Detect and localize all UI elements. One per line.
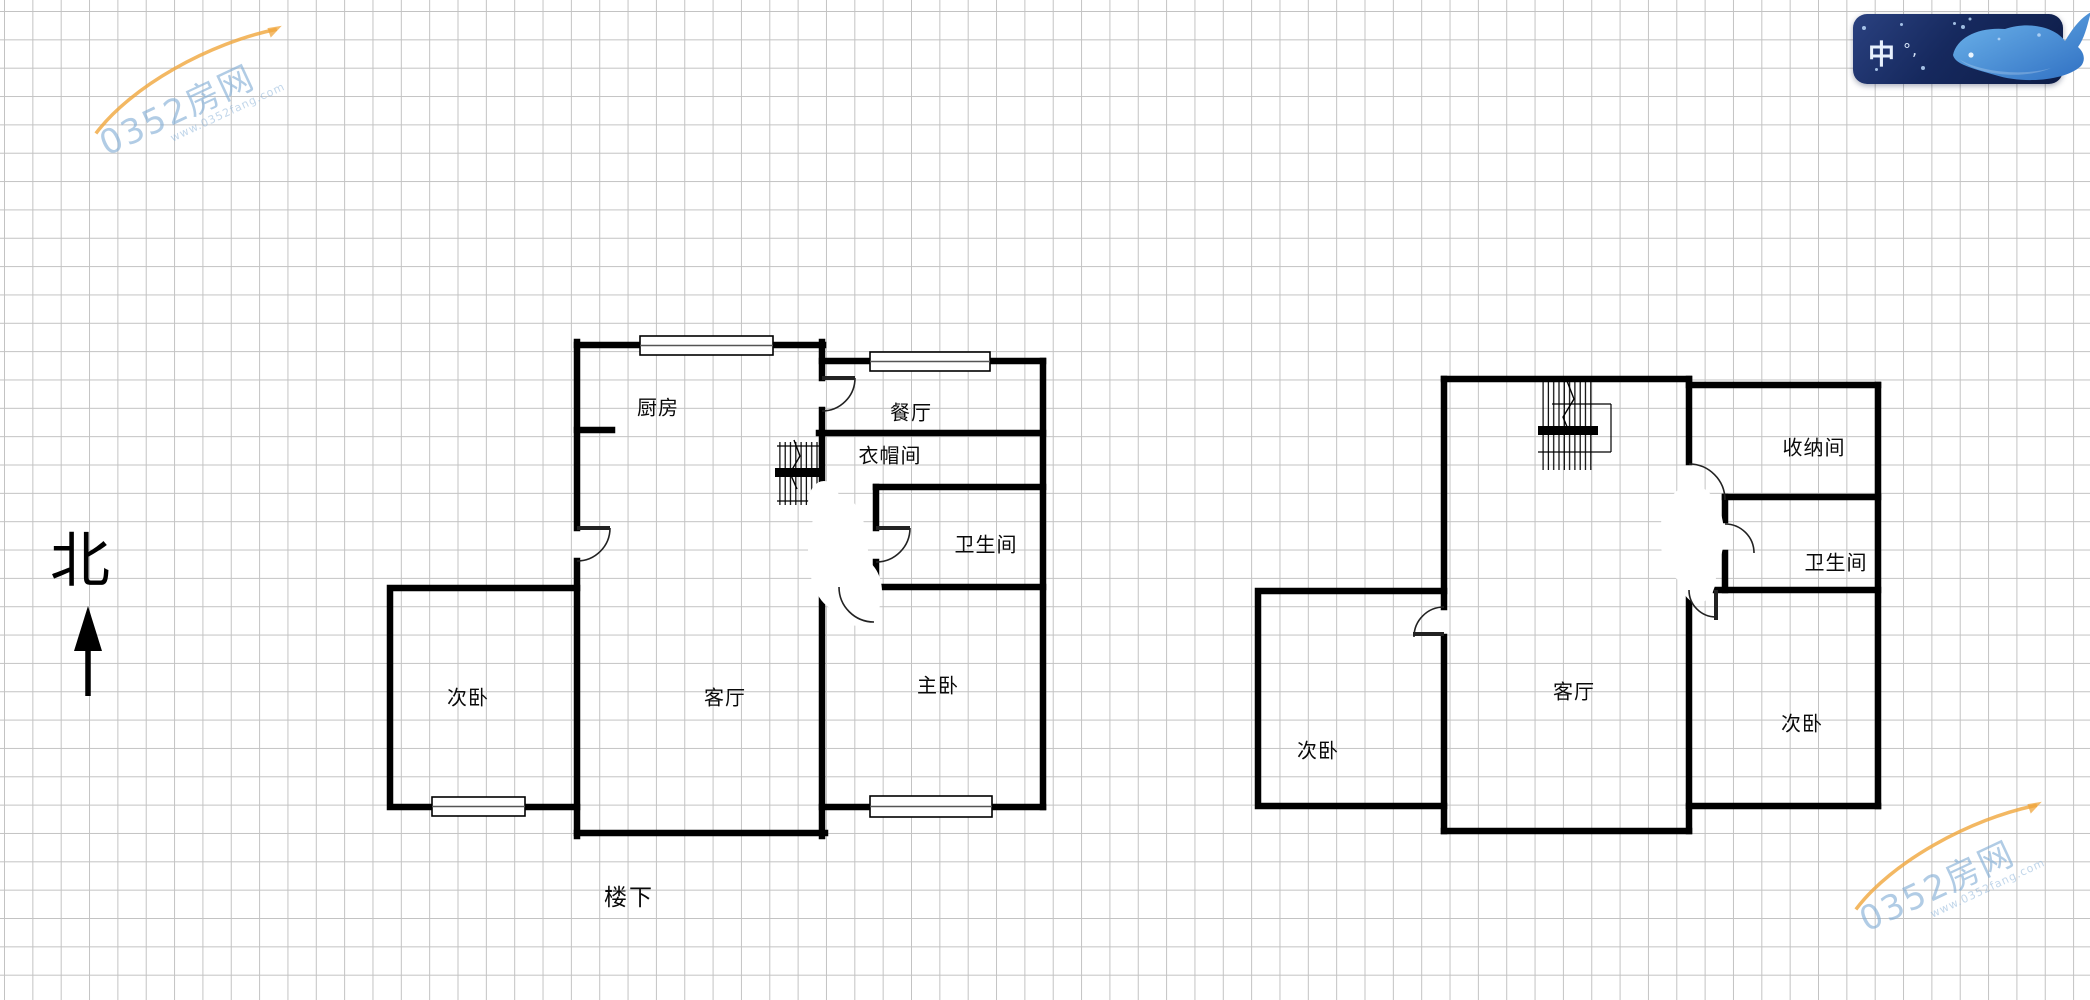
room-label-secondary-down: 次卧 [447,682,489,711]
ime-language-mode-button[interactable]: 中 [1868,33,1895,72]
downstairs-walls [390,342,1043,836]
plan-caption-downstairs: 楼下 [604,878,654,912]
floor-plan-canvas: 北 厨房 餐厅 衣帽间 卫生间 主卧 客厅 次卧 楼下 收纳间 卫生间 客厅 次… [0,0,2090,1000]
room-label-bathroom-up: 卫生间 [1805,547,1868,576]
room-label-living-down: 客厅 [704,682,746,711]
room-label-storage: 收纳间 [1783,432,1846,461]
room-label-dining: 餐厅 [890,397,932,426]
room-label-secondary-east: 次卧 [1781,708,1823,737]
room-label-master-bedroom: 主卧 [917,670,959,699]
floor-plan-drawing [0,0,2090,1000]
erasure-blobs [808,481,1724,626]
north-label: 北 [50,513,110,600]
north-arrow-icon [74,606,102,696]
room-label-kitchen: 厨房 [637,392,679,421]
whale-icon [1943,5,2090,91]
room-label-bathroom-down: 卫生间 [955,529,1018,558]
room-label-living-up: 客厅 [1553,676,1595,705]
ime-punctuation-mode-button[interactable]: °, [1903,40,1918,59]
stairs-upstairs [1538,381,1611,470]
room-label-cloakroom: 衣帽间 [859,440,922,469]
ime-toolbar[interactable]: 中 °, [1853,14,2063,84]
room-label-secondary-west: 次卧 [1297,735,1339,764]
